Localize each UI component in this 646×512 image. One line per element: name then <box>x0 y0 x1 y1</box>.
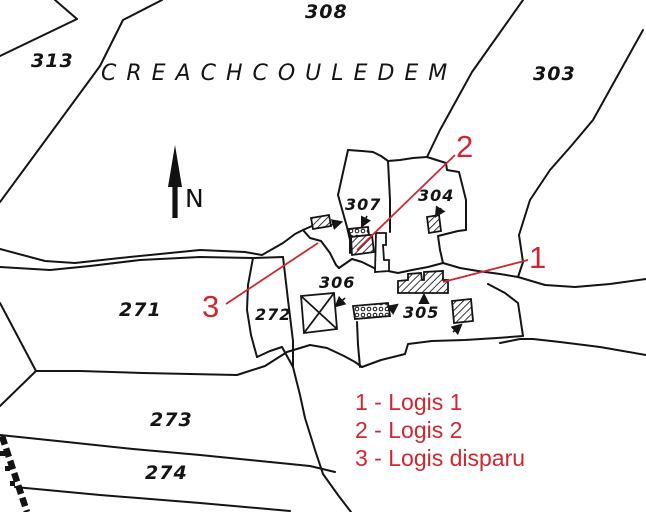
arrow-east-building-icon <box>453 325 461 332</box>
north-label: N <box>185 184 204 213</box>
road-east-lower <box>500 339 646 355</box>
building-hatched-east-icon <box>452 299 473 323</box>
boundary-313-east <box>0 0 162 202</box>
legend-item-logis-2: 2 - Logis 2 <box>355 416 525 444</box>
parcel-label-313: 313 <box>31 52 74 71</box>
boundary-273-north <box>36 345 362 375</box>
embankment-path-icon <box>0 436 27 512</box>
parcel-label-306: 306 <box>319 275 355 291</box>
building-304-icon <box>427 215 441 233</box>
parcel-label-274: 274 <box>145 464 188 483</box>
north-arrow-icon <box>168 145 182 218</box>
boundary-273-nw <box>0 371 36 406</box>
plots-north-edge <box>348 150 427 161</box>
parcel-label-304: 304 <box>418 188 454 204</box>
plots-south-edge <box>339 259 443 273</box>
marker-1-label: 1 <box>529 242 546 273</box>
marker-2-label: 2 <box>456 131 473 162</box>
legend-item-logis-1: 1 - Logis 1 <box>355 388 525 416</box>
boundary-topleft-a <box>55 0 77 19</box>
road-west-lower <box>0 257 283 270</box>
legend: 1 - Logis 1 2 - Logis 2 3 - Logis dispar… <box>355 388 525 472</box>
plot-304-east <box>427 157 466 263</box>
building-306-crossed-icon <box>301 293 337 333</box>
parcel-label-307: 307 <box>345 197 381 213</box>
parcel-label-272: 272 <box>255 307 291 323</box>
marker-3-label: 3 <box>202 291 219 322</box>
cadastral-map: CREACHCOULEDEM 308 313 303 307 304 306 3… <box>0 0 646 512</box>
boundary-courtyard-sw <box>293 367 351 512</box>
arrow-306-icon <box>336 298 345 306</box>
parcel-label-308: 308 <box>305 3 348 22</box>
courtyard-south <box>362 336 523 367</box>
building-ruin-ovals-icon <box>353 303 390 319</box>
boundary-274-south <box>15 487 290 511</box>
building-logis-1-icon <box>398 271 448 293</box>
marker-line-1 <box>443 260 528 282</box>
legend-item-logis-disparu: 3 - Logis disparu <box>355 444 525 472</box>
courtyard-east <box>488 284 523 336</box>
marker-lines <box>226 155 528 304</box>
arrow-ruin-icon <box>389 305 397 311</box>
boundary-271-sw <box>0 303 36 371</box>
boundary-272-south <box>257 347 293 367</box>
courtyard-inner-divider <box>357 322 360 367</box>
parcel-label-303: 303 <box>533 65 576 84</box>
place-name-label: CREACHCOULEDEM <box>101 61 457 86</box>
plot-divider-307-304 <box>388 161 390 232</box>
building-hatched-west-icon <box>311 215 331 229</box>
label-arrows <box>331 208 461 332</box>
road-east-upper <box>518 277 646 287</box>
parcel-label-273: 273 <box>150 411 193 430</box>
parcel-label-271: 271 <box>119 301 162 320</box>
building-tower-icon <box>375 233 389 272</box>
arrow-307-icon <box>362 216 367 226</box>
arrow-west-building-icon <box>331 222 341 225</box>
parcel-label-305: 305 <box>403 305 439 321</box>
